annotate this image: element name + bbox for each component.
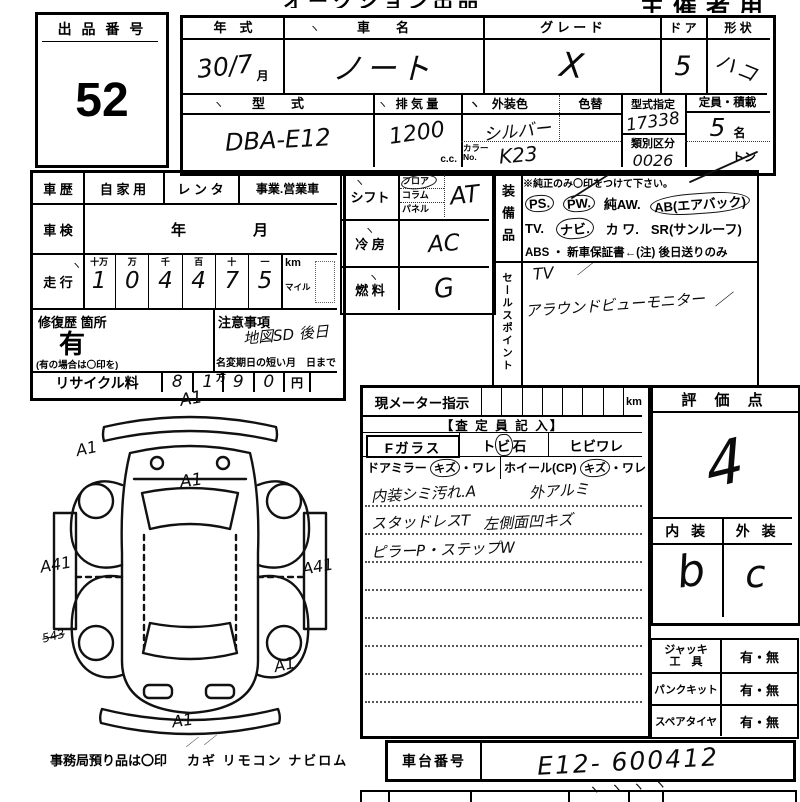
- wheel-kizu-circled: キズ: [579, 458, 610, 478]
- mileage-digits: 十万1 万0 千4 百4 十7 一5: [83, 255, 283, 308]
- wheel-text: ホイール(CP): [504, 461, 577, 475]
- handwritten-check-strokes: [550, 148, 770, 210]
- repair-history-value: 有: [33, 331, 213, 357]
- spare-tire-label: スペアタイヤ: [652, 706, 722, 736]
- sales-points-label: セールスポイント: [500, 272, 515, 372]
- wheel-label: ホイール(CP) キズ・ワレ: [504, 459, 646, 477]
- model-code-value: DBA-E12: [224, 123, 331, 156]
- shift-value: AT: [449, 180, 481, 211]
- door-label: ド ア: [660, 18, 706, 40]
- meter-box: [481, 388, 501, 415]
- door-mirror-label: ドアミラー キズ・ワレ: [367, 459, 496, 477]
- jack-tools-label: ジャッキ 工 具: [652, 640, 722, 672]
- mirror-kizu-circled: キズ: [430, 458, 461, 478]
- sheet-title-cropped: オークション出品票: [283, 0, 498, 8]
- meter-box: [582, 388, 602, 415]
- divider: [388, 792, 390, 802]
- lot-number-value: 52: [38, 73, 166, 128]
- shape-cell: 形 状 ハコ: [706, 18, 770, 93]
- color-change-label: 色替: [559, 95, 621, 113]
- check-slash: ／: [186, 734, 197, 750]
- divider: [363, 432, 642, 433]
- assessor-note-2b: 左側面凹キズ: [483, 509, 574, 535]
- model-code-cell: 型 式 ヽ DBA-E12: [183, 95, 375, 167]
- exterior-label: 外 装: [724, 519, 793, 543]
- assessor-section-header: 【査 定 員 記 入】: [363, 417, 642, 432]
- repair-history-note: (有の場合は〇印を): [33, 357, 213, 371]
- equipment-line3: ABS ・ 新車保証書←(注) 後日送りのみ: [519, 239, 757, 260]
- recycle-digit: 9: [224, 372, 255, 392]
- jack-tools-value: 有・無: [722, 640, 797, 672]
- color-no-value: K23: [498, 141, 539, 168]
- mirror-ware-text: ・ワレ: [460, 461, 496, 475]
- divider: [470, 792, 472, 802]
- note-line: [365, 673, 642, 675]
- note-line: [365, 589, 642, 591]
- stone-chip-label: トビ石: [461, 434, 547, 456]
- year-label: 年 式: [183, 18, 283, 40]
- check-tick: ヽ: [368, 269, 379, 285]
- puncture-kit-label: パンクキット: [652, 674, 722, 704]
- meter-km-unit: km: [626, 396, 642, 408]
- interior-label: 内 装: [653, 519, 724, 543]
- equipment-sr: SR(サンルーフ): [651, 219, 742, 238]
- year-value: 30/7: [196, 49, 255, 84]
- digit-header: 一: [249, 255, 281, 268]
- year-month-suffix: 月: [257, 67, 269, 84]
- exterior-color-label: 外装色: [492, 97, 528, 111]
- divider: [662, 792, 664, 802]
- note-line: [365, 617, 642, 619]
- digit-header: 十万: [83, 255, 115, 268]
- door-cell: ド ア 5: [660, 18, 708, 93]
- model-code-label: 型 式: [183, 95, 373, 115]
- assessor-note-1b: 外アルミ: [528, 478, 589, 503]
- inspection-year: 年: [171, 219, 186, 240]
- mileage-unit-checkbox: [315, 261, 335, 303]
- check-slash: ／: [715, 286, 731, 310]
- divider: [42, 41, 158, 42]
- sales-points-box: TV ／ アラウンドビューモニター ／: [519, 258, 759, 387]
- check-tick: ヽ: [469, 96, 480, 114]
- meter-digit-boxes: [481, 388, 624, 415]
- history-option-rental: レ ン タ: [163, 173, 240, 203]
- divider: [461, 141, 621, 142]
- stone-chip-circled: ビ: [495, 433, 514, 456]
- type-designation-value: 17338: [625, 108, 681, 135]
- color-no-label: カラーNo.: [463, 144, 489, 162]
- note-line: [365, 505, 642, 507]
- sales-point-line2: アラウンドビューモニター: [524, 288, 705, 322]
- shift-label: シフト: [342, 173, 400, 219]
- meter-box: [542, 388, 562, 415]
- grade-cell: グ レ ー ド X: [483, 18, 662, 93]
- grade-label: グ レ ー ド: [483, 18, 660, 40]
- equipment-navi: ナビ.: [555, 217, 594, 241]
- car-damage-diagram: A1 A1 A1 A41 A41 543 A1 A1: [40, 393, 340, 748]
- repair-history-cell: 修復歴 箇所 有 (有の場合は〇印を): [33, 310, 215, 371]
- divider: [459, 433, 460, 456]
- sheet-title-text: オークション出品票: [283, 0, 498, 8]
- recycle-fee-label: リサイクル料: [33, 373, 163, 392]
- check-slash: ／: [577, 258, 592, 279]
- car-name-cell: 車 名 ヽ ノート: [283, 18, 485, 93]
- assessor-table: 現メーター指示 km 【査 定 員 記 入】 Fガラス トビ石 ヒビワレ ドアミ…: [360, 385, 651, 739]
- organizer-label-text: 主催者用: [640, 0, 790, 13]
- fuel-value: G: [432, 273, 456, 306]
- door-value: 5: [674, 51, 691, 82]
- shift-option-column: コラム: [400, 189, 444, 203]
- note-line: [365, 701, 642, 703]
- evaluation-score: 4: [703, 424, 747, 504]
- check-tick: ヽ: [377, 96, 388, 112]
- equipment-kawa: カ ワ.: [606, 219, 639, 238]
- custody-items: カギ リモコン ナビロム: [187, 750, 348, 769]
- mileage-digit: 4: [183, 268, 215, 294]
- capacity-value: 5: [710, 113, 726, 142]
- recycle-fee-boxes: 8 1 9 0 円: [161, 372, 311, 392]
- aircon-value: AC: [427, 229, 461, 257]
- repair-history-label: 修復歴 箇所: [33, 310, 213, 331]
- equipment-tv: TV.: [525, 221, 544, 236]
- exterior-grade: c: [743, 551, 767, 596]
- damage-annotation: A1: [179, 470, 204, 493]
- custody-note-label: 事務局預り品は〇印: [50, 750, 167, 769]
- inspection-label: 車 検: [33, 205, 85, 253]
- shape-label: 形 状: [706, 18, 770, 40]
- digit-header: 十: [216, 255, 248, 268]
- stone-chip-text: ト: [482, 435, 496, 455]
- car-name-value: ノート: [332, 44, 434, 88]
- capacity-label: 定員・積載: [685, 95, 770, 113]
- meter-box: [562, 388, 582, 415]
- chassis-number-value: E12- 600412: [536, 742, 719, 780]
- auction-sheet: オークション出品票 主催者用 出 品 番 号 52 年 式 30/7 月 車 名…: [0, 0, 800, 800]
- divider: [722, 543, 724, 617]
- chassis-number-row: 車台番号 E12- 600412: [385, 740, 796, 782]
- divider: [363, 456, 642, 457]
- divider: [795, 792, 797, 802]
- history-table: 車 歴 自 家 用 レ ン タ 事業.営業車 車 検 年 月 走 行 ヽ 十万1…: [30, 170, 346, 401]
- digit-header: 千: [149, 255, 181, 268]
- divider: [500, 457, 501, 479]
- wheel-ware-text: ・ワレ: [610, 461, 646, 475]
- damage-annotation: A1: [171, 710, 195, 732]
- note-line: [365, 561, 642, 563]
- mile-unit-label: マイル: [285, 281, 319, 293]
- history-option-commercial: 事業.営業車: [238, 173, 337, 203]
- mileage-digit: 4: [149, 268, 181, 294]
- mileage-digit: 1: [83, 268, 115, 294]
- meter-box: [522, 388, 542, 415]
- current-meter-label: 現メーター指示: [363, 388, 481, 415]
- door-mirror-text: ドアミラー: [367, 461, 427, 475]
- tools-box: ジャッキ 工 具 有・無 パンクキット 有・無 スペアタイヤ 有・無: [650, 638, 799, 739]
- digit-header: 万: [116, 255, 148, 268]
- assessor-note-1a: 内装シミ汚れ.A: [371, 480, 477, 506]
- assessor-note-3: ピラーP・ステップW: [371, 536, 516, 562]
- drivetrain-table: シフト ヽ フロア コラム パネル AT 冷 房 ヽ AC 燃 料 ヽ G: [340, 170, 496, 315]
- interior-grade: b: [674, 544, 709, 598]
- check-tick: ヽ: [71, 257, 82, 273]
- shape-value: ハコ: [712, 44, 764, 87]
- shift-options: フロア コラム パネル: [400, 175, 445, 217]
- damage-annotation: A1: [178, 387, 204, 411]
- evaluation-label: 評 価 点: [653, 388, 798, 413]
- crack-label: ヒビワレ: [550, 434, 642, 456]
- lot-number-label: 出 品 番 号: [38, 15, 166, 39]
- digit-header: 百: [183, 255, 215, 268]
- history-option-private: 自 家 用: [83, 173, 165, 203]
- km-unit-label: km: [285, 257, 319, 269]
- check-tick: ヽ: [354, 174, 365, 190]
- check-tick: ヽ: [213, 96, 224, 112]
- displacement-value: 1200: [388, 117, 447, 150]
- grade-value: X: [558, 45, 585, 87]
- yen-suffix: 円: [285, 372, 311, 392]
- displacement-cell: 排 気 量 ヽ 1200 c.c.: [373, 95, 463, 167]
- organizer-label-cropped: 主催者用: [640, 0, 790, 13]
- check-tick: ヽ: [309, 20, 320, 36]
- year-cell: 年 式 30/7 月: [183, 18, 285, 93]
- front-glass-label: Fガラス: [366, 435, 460, 458]
- lot-number-box: 出 品 番 号 52: [35, 12, 169, 168]
- divider: [559, 115, 560, 141]
- history-label: 車 歴: [33, 173, 85, 203]
- inspection-month: 月: [253, 219, 268, 240]
- divider: [360, 792, 362, 802]
- equipment-label: 装備品: [498, 184, 517, 250]
- spare-tire-value: 有・無: [722, 706, 797, 736]
- note-line: [365, 645, 642, 647]
- evaluation-box: 評 価 点 4 内 装 外 装 b c: [650, 385, 800, 626]
- mileage-digit: 0: [116, 268, 148, 294]
- check-tick: ヽ: [364, 222, 375, 238]
- office-custody-note: 事務局預り品は〇印 カギ リモコン ナビロム: [50, 750, 348, 769]
- mileage-digit: 5: [249, 268, 281, 294]
- divider: [548, 433, 549, 456]
- capacity-suffix: 名: [733, 124, 745, 141]
- divider: [568, 792, 570, 802]
- caution-cell: 注意事項 地図SD 後日 名変期日の短い方 月 日まで: [213, 310, 337, 371]
- sales-point-line1: TV: [532, 263, 554, 284]
- bottom-table-cropped: [360, 790, 797, 802]
- meter-box: [603, 388, 624, 415]
- divider: [628, 792, 630, 802]
- chassis-number-label: 車台番号: [388, 743, 482, 779]
- stone-chip-text2: 石: [513, 435, 527, 455]
- check-slash: ／: [204, 732, 215, 748]
- recycle-digit: 0: [255, 372, 286, 392]
- puncture-kit-value: 有・無: [722, 674, 797, 704]
- mileage-digit: 7: [216, 268, 248, 294]
- shift-option-panel: パネル: [400, 203, 444, 216]
- assessor-note-2a: スタッドレスT: [371, 509, 471, 533]
- cc-suffix: c.c.: [440, 154, 457, 165]
- meter-box: [501, 388, 521, 415]
